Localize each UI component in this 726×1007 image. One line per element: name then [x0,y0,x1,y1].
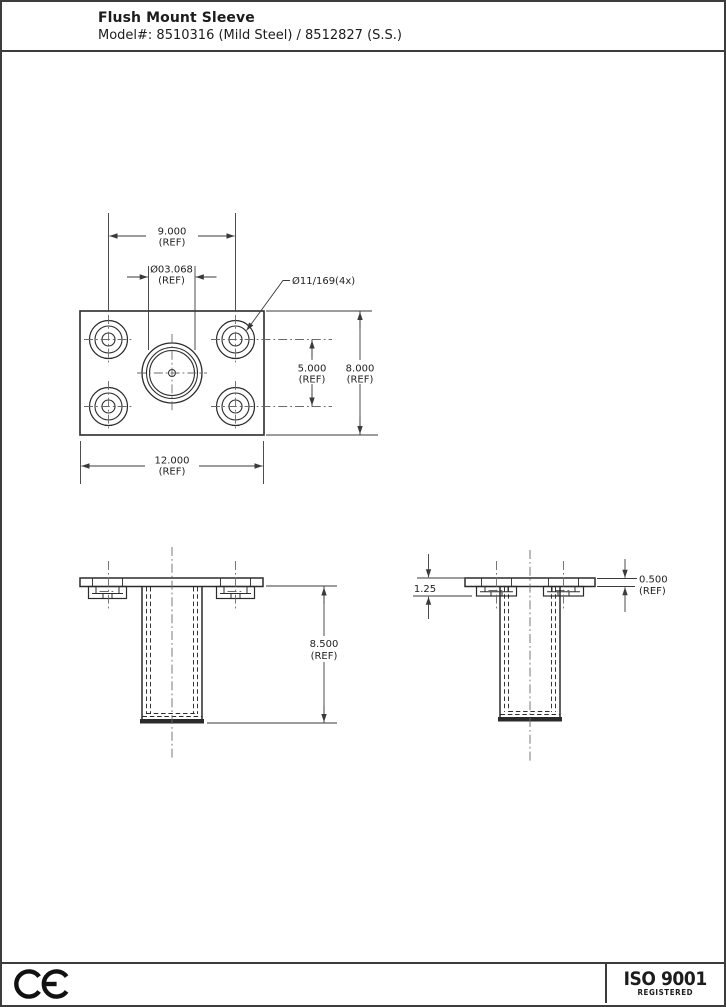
dim-label: 1.25 [414,584,436,595]
centerlines-side [497,550,564,763]
footer-band: CE ISO 9001 REGISTERED [2,962,724,1003]
dim-label: Ø03.068 [150,264,193,276]
title-block: Flush Mount Sleeve Model#: 8510316 (Mild… [2,2,724,52]
side-view: 1.25 0.500 (REF) [413,550,668,763]
dim-ref: (REF) [311,651,338,662]
centerlines-plan [84,315,332,430]
dim-ref: (REF) [347,375,374,386]
front-view: 8.500 (REF) [80,547,342,760]
dim-ref: (REF) [158,276,185,287]
drawing-sheet: Flush Mount Sleeve Model#: 8510316 (Mild… [0,0,726,1007]
page-title: Flush Mount Sleeve [98,10,724,27]
dim-hole-spacing: 5.000 (REF) [295,340,329,407]
model-number: Model#: 8510316 (Mild Steel) / 8512827 (… [98,27,724,44]
anchor-bracket [89,587,127,599]
ce-mark-icon [14,967,86,1001]
ce-mark: CE [2,964,605,1003]
iso-certification-box: ISO 9001 REGISTERED [605,964,724,1003]
dim-label: 5.000 [298,364,327,375]
technical-drawing: 9.000 (REF) Ø03.068 (REF) Ø11/169(4x) [2,52,724,962]
dim-label: 9.000 [158,227,187,238]
callout-label: Ø11/169(4x) [292,275,355,287]
iso-registered-label: REGISTERED [638,988,694,997]
dim-flange-depth: 1.25 [413,554,472,619]
dim-ref: (REF) [299,375,326,386]
dim-ref: (REF) [159,467,186,478]
dim-label: 12.000 [155,456,190,467]
top-view: 9.000 (REF) Ø03.068 (REF) Ø11/169(4x) [80,213,378,484]
dim-ref: (REF) [639,586,666,597]
dim-sleeve-length: 8.500 (REF) [207,586,342,723]
flange-hole-edges [93,579,251,587]
dim-label: 8.500 [310,639,339,650]
dim-label: 0.500 [639,575,668,586]
dim-ref: (REF) [159,238,186,249]
hole-callout: Ø11/169(4x) [247,275,356,331]
dim-flange-thickness: 0.500 (REF) [597,559,668,612]
centerlines-front [109,547,236,760]
dim-plate-width: 12.000 (REF) [81,441,264,484]
dim-hole-span: 9.000 (REF) [109,213,236,311]
iso-9001-label: ISO 9001 [624,970,707,988]
dim-label: 8.000 [346,364,375,375]
drawing-area: 9.000 (REF) Ø03.068 (REF) Ø11/169(4x) [2,52,724,962]
